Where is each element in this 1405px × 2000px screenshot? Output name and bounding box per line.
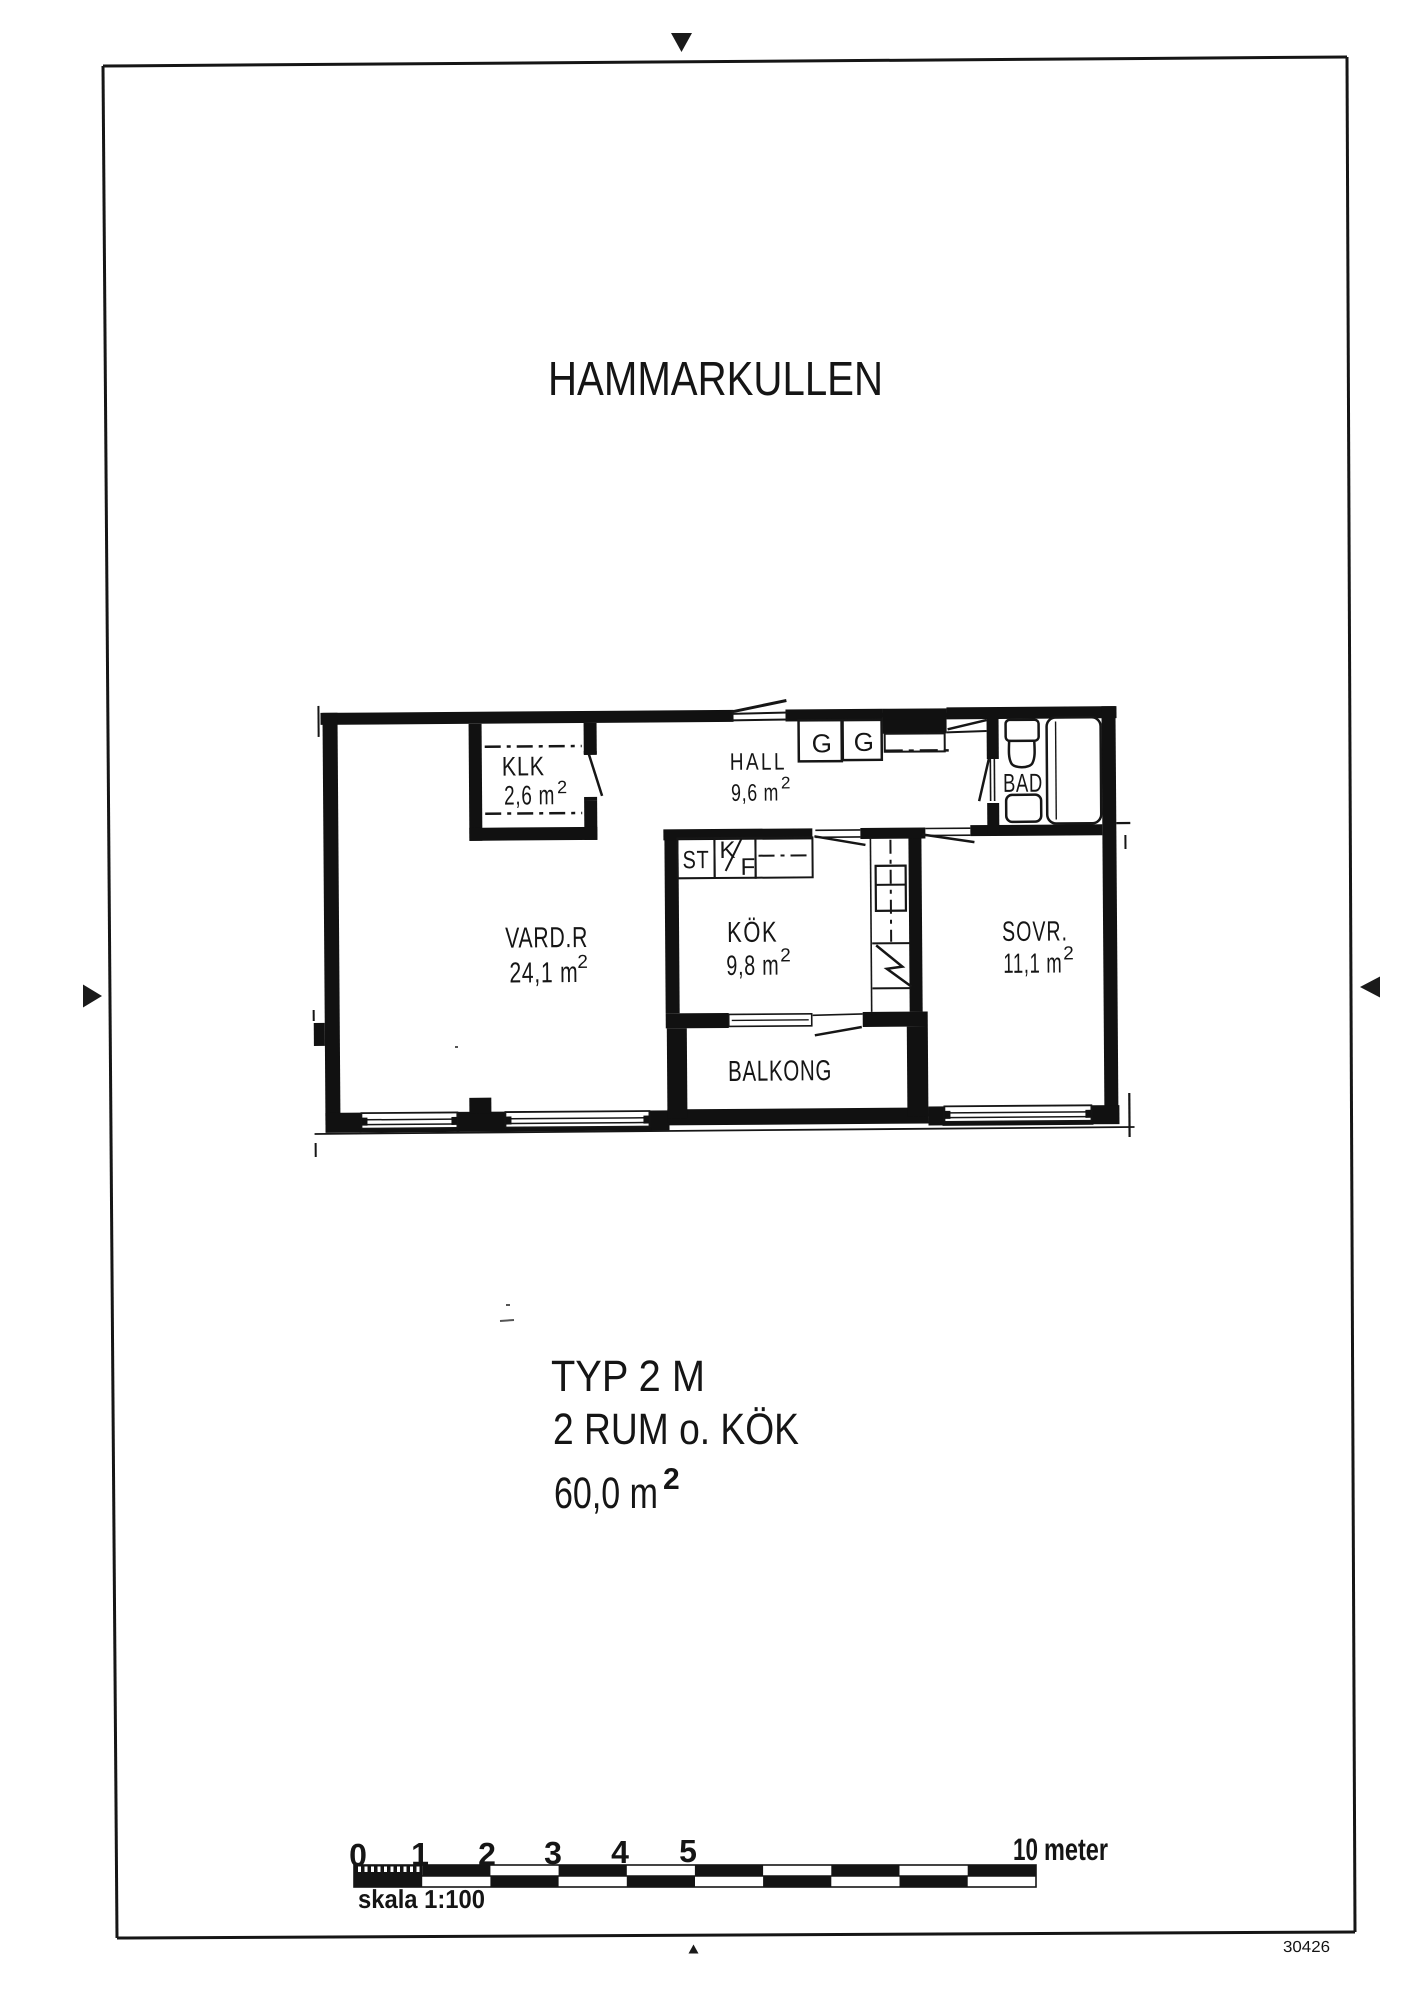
svg-text:60,0 m: 60,0 m [554, 1469, 658, 1518]
svg-text:meter: meter [1044, 1832, 1108, 1867]
svg-text:2: 2 [1063, 943, 1075, 964]
svg-text:24,1 m: 24,1 m [509, 957, 578, 990]
svg-text:ST: ST [682, 846, 709, 874]
svg-text:10: 10 [1013, 1832, 1038, 1867]
svg-text:SOVR.: SOVR. [1002, 915, 1068, 946]
svg-text:30426: 30426 [1283, 1939, 1330, 1956]
svg-text:TYP 2 M: TYP 2 M [551, 1352, 705, 1401]
svg-text:KÖK: KÖK [727, 917, 778, 949]
svg-text:2,6 m: 2,6 m [504, 780, 555, 810]
svg-text:2 RUM o. KÖK: 2 RUM o. KÖK [553, 1405, 799, 1454]
svg-text:VARD.R: VARD.R [505, 922, 588, 955]
svg-text:KLK: KLK [502, 751, 545, 781]
svg-text:9,6 m: 9,6 m [731, 780, 779, 807]
svg-text:F: F [741, 854, 757, 881]
svg-text:1: 1 [411, 1836, 429, 1872]
svg-text:3: 3 [544, 1835, 562, 1871]
svg-text:2: 2 [557, 777, 568, 797]
svg-text:2: 2 [663, 1463, 680, 1496]
svg-text:G: G [812, 728, 833, 758]
svg-text:9,8 m: 9,8 m [726, 950, 779, 981]
svg-text:HAMMARKULLEN: HAMMARKULLEN [548, 353, 883, 406]
svg-text:2: 2 [781, 773, 792, 792]
svg-text:BAD: BAD [1003, 768, 1043, 798]
svg-text:G: G [854, 727, 875, 757]
svg-text:2: 2 [478, 1836, 496, 1872]
svg-text:11,1 m: 11,1 m [1003, 947, 1062, 978]
svg-text:4: 4 [611, 1834, 629, 1870]
svg-text:HALL: HALL [730, 749, 787, 776]
svg-text:2: 2 [577, 952, 589, 973]
svg-text:skala 1:100: skala 1:100 [358, 1884, 485, 1914]
svg-text:BALKONG: BALKONG [728, 1055, 832, 1088]
svg-text:K: K [719, 837, 736, 864]
svg-text:2: 2 [780, 945, 792, 966]
svg-text:0: 0 [349, 1837, 367, 1873]
svg-text:5: 5 [679, 1833, 697, 1869]
